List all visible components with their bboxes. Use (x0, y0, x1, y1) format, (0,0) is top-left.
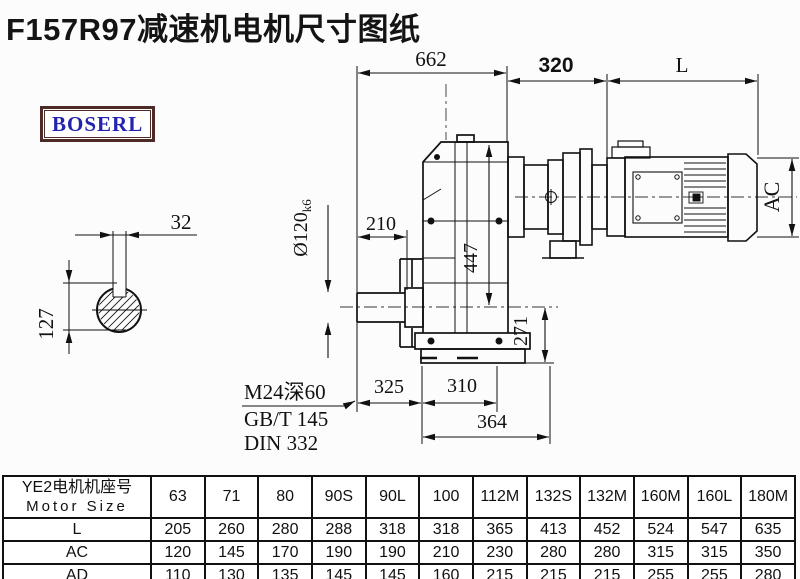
column-header: 80 (258, 476, 312, 518)
column-header: 132M (580, 476, 634, 518)
value-cell: 170 (258, 541, 312, 564)
motor-panel-screws (636, 175, 679, 220)
dim-shaft-length: 210 (366, 213, 396, 235)
row-label: AC (3, 541, 151, 564)
table-body: L205260280288318318365413452524547635AC1… (3, 518, 795, 579)
motor-size-header: YE2电机机座号 Motor Size (3, 476, 151, 518)
value-cell: 110 (151, 564, 205, 579)
value-cell: 120 (151, 541, 205, 564)
keyway-slot (113, 284, 127, 297)
value-cell: 280 (527, 541, 581, 564)
dim-height-447: 447 (460, 243, 482, 273)
dim-key-width: 32 (171, 210, 192, 234)
dim-motor-AC: AC (759, 182, 784, 213)
value-cell: 230 (473, 541, 527, 564)
dim-motor-length-L: L (676, 53, 689, 77)
value-cell: 365 (473, 518, 527, 541)
note-thread: M24深60 (244, 380, 326, 404)
table-row: L205260280288318318365413452524547635 (3, 518, 795, 541)
value-cell: 315 (688, 541, 742, 564)
column-header: 63 (151, 476, 205, 518)
spec-table-wrap: YE2电机机座号 Motor Size 63718090S90L100112M1… (2, 475, 796, 579)
value-cell: 205 (151, 518, 205, 541)
dim-364: 364 (477, 411, 507, 433)
value-cell: 288 (312, 518, 366, 541)
value-cell: 215 (580, 564, 634, 579)
value-cell: 255 (634, 564, 688, 579)
row-label: L (3, 518, 151, 541)
gearbox-body (357, 135, 530, 363)
dim-shaft-height: 127 (34, 308, 58, 340)
motor (607, 141, 757, 241)
value-cell: 210 (419, 541, 473, 564)
fan-cover (728, 154, 757, 241)
shaft-cross-section-view: 32 127 (34, 210, 198, 354)
column-header: 90L (366, 476, 420, 518)
dim-310: 310 (447, 375, 477, 397)
motor-size-header-en: Motor Size (4, 497, 150, 516)
value-cell: 145 (366, 564, 420, 579)
spec-table: YE2电机机座号 Motor Size 63718090S90L100112M1… (2, 475, 796, 579)
value-cell: 145 (312, 564, 366, 579)
value-cell: 260 (205, 518, 259, 541)
note-gbt-standard: GB/T 145 (244, 407, 328, 431)
column-header: 132S (527, 476, 581, 518)
value-cell: 413 (527, 518, 581, 541)
dim-325: 325 (374, 376, 404, 398)
motor-cooling-fins (684, 163, 726, 232)
page: F157R97减速机电机尺寸图纸 BOSERL (0, 0, 800, 579)
column-header: 71 (205, 476, 259, 518)
motor-adapter (508, 149, 607, 258)
value-cell: 160 (419, 564, 473, 579)
value-cell: 547 (688, 518, 742, 541)
value-cell: 145 (205, 541, 259, 564)
value-cell: 215 (527, 564, 581, 579)
column-header: 100 (419, 476, 473, 518)
value-cell: 350 (741, 541, 795, 564)
dim-shaft-diameter: Ø120k6 (290, 199, 314, 257)
column-header: 112M (473, 476, 527, 518)
value-cell: 280 (580, 541, 634, 564)
value-cell: 280 (258, 518, 312, 541)
table-row: AD110130135145145160215215215255255280 (3, 564, 795, 579)
value-cell: 635 (741, 518, 795, 541)
column-header: 160M (634, 476, 688, 518)
value-cell: 135 (258, 564, 312, 579)
value-cell: 524 (634, 518, 688, 541)
shaft-diameter-value: Ø120 (290, 212, 312, 256)
header-row: YE2电机机座号 Motor Size 63718090S90L100112M1… (3, 476, 795, 518)
column-header: 180M (741, 476, 795, 518)
value-cell: 318 (419, 518, 473, 541)
value-cell: 280 (741, 564, 795, 579)
dim-axis-height-271: 271 (510, 316, 532, 346)
motor-size-header-cn: YE2电机机座号 (4, 478, 150, 497)
shaft-tolerance: k6 (299, 199, 314, 213)
value-cell: 190 (312, 541, 366, 564)
value-cell: 215 (473, 564, 527, 579)
note-din-standard: DIN 332 (244, 431, 318, 455)
technical-drawing: 32 127 (0, 0, 800, 472)
value-cell: 315 (634, 541, 688, 564)
value-cell: 318 (366, 518, 420, 541)
column-header: 160L (688, 476, 742, 518)
table-row: AC120145170190190210230280280315315350 (3, 541, 795, 564)
dim-total-length: 662 (415, 47, 447, 71)
dim-adapter-length: 320 (538, 54, 573, 77)
value-cell: 255 (688, 564, 742, 579)
row-label: AD (3, 564, 151, 579)
column-header: 90S (312, 476, 366, 518)
value-cell: 130 (205, 564, 259, 579)
value-cell: 452 (580, 518, 634, 541)
value-cell: 190 (366, 541, 420, 564)
